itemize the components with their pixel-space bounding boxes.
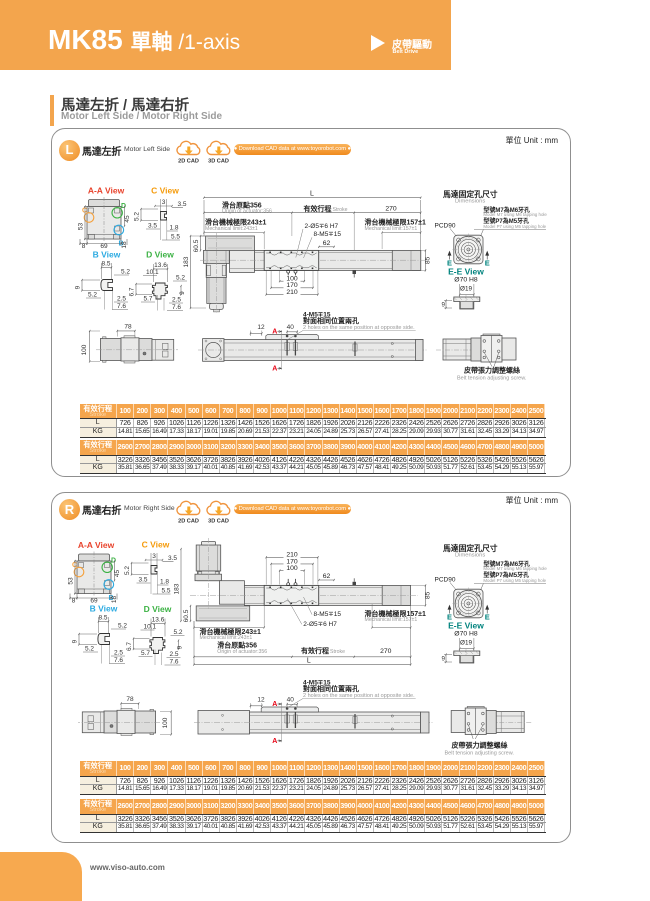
svg-text:62: 62: [323, 573, 331, 580]
svg-text:85: 85: [424, 256, 431, 264]
svg-text:3.5: 3.5: [148, 223, 157, 230]
svg-text:62: 62: [323, 240, 331, 247]
svg-text:6.7: 6.7: [129, 287, 136, 296]
svg-text:3.5: 3.5: [178, 201, 187, 208]
svg-text:100: 100: [81, 344, 88, 355]
svg-text:8-M5∓15: 8-M5∓15: [314, 611, 342, 618]
svg-text:12: 12: [257, 324, 265, 331]
svg-text:Ø70 H8: Ø70 H8: [454, 277, 478, 284]
svg-text:7.6: 7.6: [114, 657, 123, 664]
svg-text:有效行程: 有效行程: [304, 204, 332, 213]
svg-text:C View: C View: [151, 186, 179, 196]
svg-text:Mechanical limit:243±1: Mechanical limit:243±1: [200, 635, 253, 641]
svg-text:Origin of actuator:356: Origin of actuator:356: [217, 649, 267, 655]
svg-text:45: 45: [114, 570, 121, 578]
svg-text:A-A View: A-A View: [78, 540, 115, 550]
svg-text:3.5: 3.5: [139, 577, 148, 584]
svg-text:D View: D View: [146, 250, 174, 260]
svg-text:7.6: 7.6: [170, 659, 179, 666]
svg-text:A: A: [272, 329, 277, 336]
svg-text:10.1: 10.1: [144, 624, 157, 631]
svg-text:3: 3: [152, 553, 156, 560]
svg-text:53: 53: [68, 577, 75, 585]
svg-text:E: E: [485, 612, 490, 621]
svg-text:Belt tension adjusting screw.: Belt tension adjusting screw.: [445, 751, 515, 757]
svg-text:5.2: 5.2: [134, 212, 141, 221]
svg-text:5.2: 5.2: [85, 646, 94, 653]
svg-text:270: 270: [385, 206, 397, 213]
svg-text:A-A View: A-A View: [88, 186, 125, 196]
svg-text:9: 9: [441, 655, 445, 662]
svg-text:Ø19: Ø19: [460, 640, 472, 647]
svg-text:馬達固定孔尺寸: 馬達固定孔尺寸: [443, 543, 498, 553]
svg-text:Dimensions: Dimensions: [455, 553, 485, 559]
svg-text:7.6: 7.6: [117, 303, 126, 310]
svg-text:Ø70 H8: Ø70 H8: [454, 631, 478, 638]
svg-text:E-E View: E-E View: [448, 621, 484, 631]
svg-text:78: 78: [126, 696, 134, 703]
svg-text:A: A: [272, 366, 277, 373]
svg-text:9: 9: [179, 291, 186, 295]
svg-text:100: 100: [162, 717, 169, 728]
svg-text:85: 85: [424, 591, 431, 599]
svg-text:對面相同位置兩孔: 對面相同位置兩孔: [303, 316, 359, 325]
svg-text:C: C: [72, 562, 77, 569]
svg-text:5.2: 5.2: [176, 275, 185, 282]
svg-text:8-M5∓15: 8-M5∓15: [314, 231, 342, 238]
svg-text:3: 3: [162, 199, 166, 206]
svg-text:9: 9: [75, 285, 82, 289]
svg-text:B View: B View: [90, 604, 118, 614]
svg-text:5.2: 5.2: [88, 292, 97, 299]
svg-text:皮帶張力調整螺絲: 皮帶張力調整螺絲: [451, 741, 508, 750]
svg-text:8: 8: [72, 597, 76, 604]
svg-text:8: 8: [82, 243, 86, 250]
svg-text:2-Ø5∓6 H7: 2-Ø5∓6 H7: [303, 621, 337, 628]
svg-text:有效行程: 有效行程: [301, 646, 329, 655]
svg-text:Mechanical limit:243±1: Mechanical limit:243±1: [205, 226, 258, 232]
svg-text:Stroke: Stroke: [330, 649, 345, 655]
svg-text:100: 100: [286, 565, 298, 572]
svg-text:D: D: [111, 558, 116, 565]
svg-text:B View: B View: [93, 250, 121, 260]
svg-text:Mechanical limit:157±1: Mechanical limit:157±1: [365, 226, 418, 232]
svg-text:Model M7 using M6 tapping hole: Model M7 using M6 tapping hole: [483, 212, 547, 217]
svg-text:C: C: [82, 208, 87, 215]
svg-text:2.5: 2.5: [170, 651, 179, 658]
svg-text:E-E View: E-E View: [448, 267, 484, 277]
svg-text:53: 53: [78, 223, 85, 231]
svg-text:Ø19: Ø19: [460, 286, 472, 293]
svg-text:13.6: 13.6: [152, 617, 165, 624]
svg-text:對面相同位置兩孔: 對面相同位置兩孔: [303, 684, 359, 693]
svg-text:Mechanical limit:157±1: Mechanical limit:157±1: [365, 617, 418, 623]
svg-text:10.1: 10.1: [146, 269, 159, 276]
svg-text:Origin of actuator:356: Origin of actuator:356: [222, 208, 272, 214]
svg-text:5.7: 5.7: [144, 296, 153, 303]
svg-text:40: 40: [287, 324, 295, 331]
svg-text:L: L: [310, 191, 314, 198]
svg-text:3.5: 3.5: [168, 555, 177, 562]
svg-text:2 holes on the same position a: 2 holes on the same position at opposite…: [303, 693, 415, 699]
svg-text:13.6: 13.6: [154, 262, 167, 269]
svg-text:40: 40: [287, 697, 295, 704]
svg-text:12: 12: [257, 697, 265, 704]
svg-text:皮帶張力調整螺絲: 皮帶張力調整螺絲: [463, 366, 520, 375]
svg-text:PCD90: PCD90: [435, 223, 456, 230]
svg-text:2-Ø5∓6 H7: 2-Ø5∓6 H7: [305, 223, 339, 230]
svg-text:8.5: 8.5: [101, 261, 110, 268]
svg-text:270: 270: [380, 648, 392, 655]
svg-text:D View: D View: [144, 604, 172, 614]
svg-text:60.5: 60.5: [183, 609, 190, 622]
svg-text:Dimensions: Dimensions: [455, 199, 485, 205]
svg-text:7.6: 7.6: [172, 304, 181, 311]
svg-text:5.2: 5.2: [121, 269, 130, 276]
svg-text:L: L: [307, 658, 311, 665]
svg-text:1.8: 1.8: [160, 579, 169, 586]
svg-text:8.5: 8.5: [98, 615, 107, 622]
svg-text:183: 183: [183, 256, 190, 267]
svg-text:5.5: 5.5: [162, 588, 171, 595]
svg-text:Model P7 using M5 tapping hole: Model P7 using M5 tapping hole: [483, 578, 546, 583]
svg-text:5.2: 5.2: [118, 623, 127, 630]
svg-text:Belt tension adjusting screw.: Belt tension adjusting screw.: [457, 376, 527, 382]
svg-text:6.7: 6.7: [126, 642, 133, 651]
svg-text:2.5: 2.5: [172, 297, 181, 304]
svg-text:5.2: 5.2: [124, 566, 131, 575]
svg-text:A: A: [272, 738, 277, 745]
svg-text:C View: C View: [142, 540, 170, 550]
svg-text:9: 9: [72, 639, 79, 643]
svg-text:78: 78: [124, 323, 132, 330]
svg-text:5.7: 5.7: [141, 650, 150, 657]
svg-text:2.5: 2.5: [114, 650, 123, 657]
svg-text:Stroke: Stroke: [333, 207, 348, 213]
svg-text:183: 183: [173, 583, 180, 594]
svg-text:A: A: [272, 701, 277, 708]
svg-text:18: 18: [121, 241, 128, 249]
svg-text:馬達固定孔尺寸: 馬達固定孔尺寸: [443, 189, 498, 199]
svg-text:9: 9: [176, 645, 183, 649]
svg-text:9: 9: [441, 301, 445, 308]
svg-text:PCD90: PCD90: [435, 577, 456, 584]
svg-text:E: E: [485, 258, 490, 267]
svg-text:Model P7 using M5 tapping hole: Model P7 using M5 tapping hole: [483, 224, 546, 229]
svg-text:45: 45: [124, 215, 131, 223]
svg-text:60.5: 60.5: [193, 239, 200, 252]
svg-text:2 holes on the same position a: 2 holes on the same position at opposite…: [303, 325, 415, 331]
svg-text:Model M7 using M6 tapping hole: Model M7 using M6 tapping hole: [483, 566, 547, 571]
svg-text:1.8: 1.8: [170, 225, 179, 232]
svg-text:210: 210: [286, 289, 298, 296]
svg-text:D: D: [121, 203, 126, 210]
svg-text:5.5: 5.5: [171, 234, 180, 241]
svg-text:18: 18: [111, 596, 118, 604]
svg-text:5.2: 5.2: [174, 629, 183, 636]
svg-text:2.5: 2.5: [117, 296, 126, 303]
